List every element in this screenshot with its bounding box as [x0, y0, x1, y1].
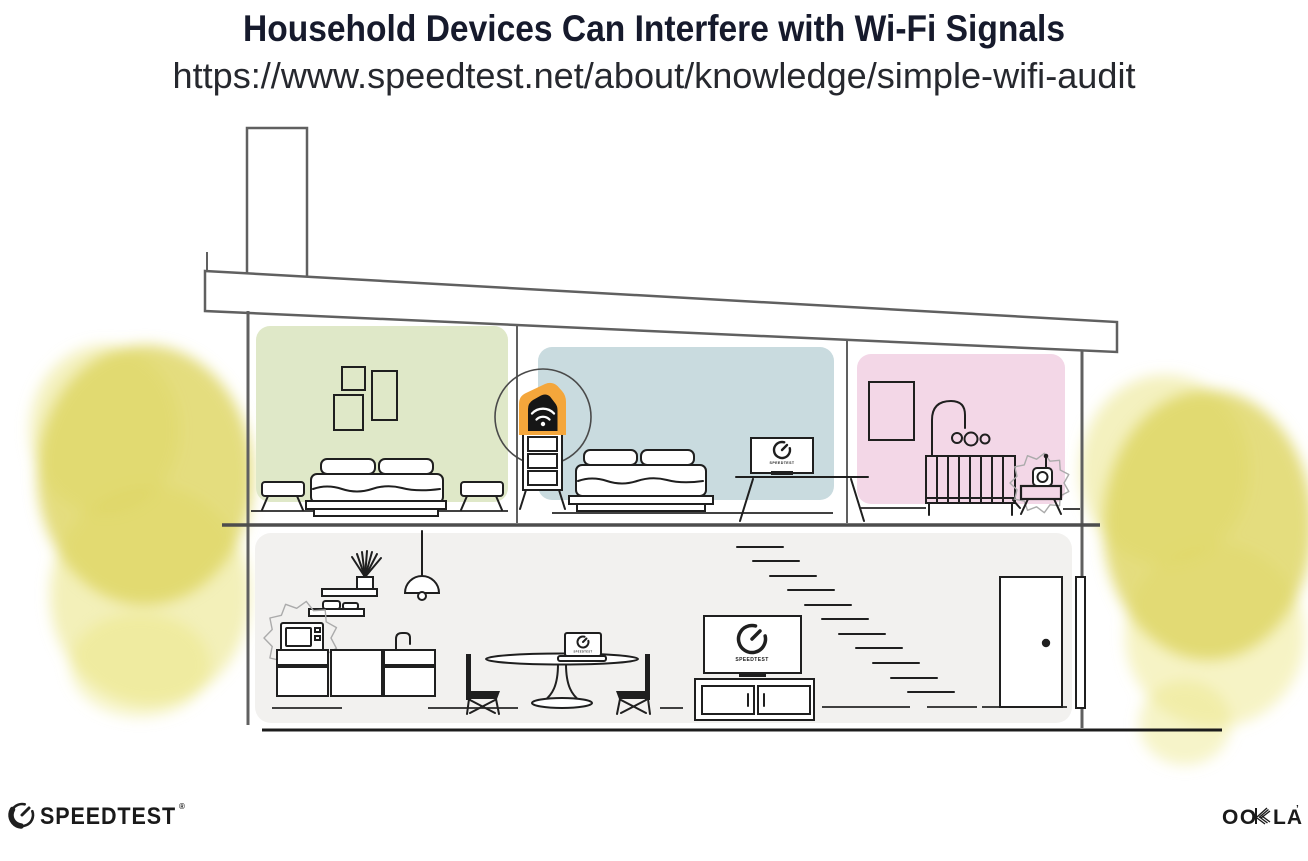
entry [1000, 577, 1085, 708]
door-icon [1000, 577, 1062, 707]
tv-icon: SPEEDTEST [704, 616, 801, 677]
ookla-trademark: ’ [1296, 804, 1299, 815]
nightstand-right-icon [461, 482, 503, 510]
bed-icon [306, 459, 446, 516]
downspout-icon [1076, 577, 1085, 708]
page-url: https://www.speedtest.net/about/knowledg… [173, 55, 1136, 96]
laptop-brand-label: SPEEDTEST [573, 650, 592, 654]
laptop-icon: SPEEDTEST [558, 633, 606, 661]
header: Household Devices Can Interfere with Wi-… [173, 8, 1136, 96]
ookla-k-icon [1256, 808, 1270, 824]
nightstand-left-icon [262, 482, 304, 510]
bed-icon [569, 450, 713, 511]
tv-brand-label: SPEEDTEST [735, 657, 768, 663]
speedtest-logo: SPEEDTEST ® [8, 801, 185, 830]
speedtest-trademark: ® [179, 802, 185, 811]
chimney-icon [247, 128, 307, 280]
speedtest-gauge-icon [8, 801, 36, 829]
cup-icon [343, 603, 358, 609]
tree-right-icon [1080, 375, 1308, 765]
media-console-icon [695, 679, 814, 720]
footer: SPEEDTEST ® OO LA ’ [8, 801, 1303, 830]
microwave-icon [281, 623, 323, 651]
speedtest-monitor-icon: SPEEDTEST [751, 438, 813, 475]
speedtest-wordmark: SPEEDTEST [40, 803, 176, 830]
monitor-brand-label: SPEEDTEST [770, 461, 795, 465]
living-area: SPEEDTEST [695, 616, 814, 720]
ookla-wordmark-left: OO [1222, 806, 1258, 829]
page-title: Household Devices Can Interfere with Wi-… [243, 8, 1065, 49]
ookla-logo: OO LA ’ [1222, 804, 1303, 829]
tree-left-icon [30, 345, 253, 717]
door-knob-icon [1042, 639, 1050, 647]
house-cross-section-illustration: Household Devices Can Interfere with Wi-… [0, 0, 1308, 861]
bowl-icon [323, 601, 340, 609]
